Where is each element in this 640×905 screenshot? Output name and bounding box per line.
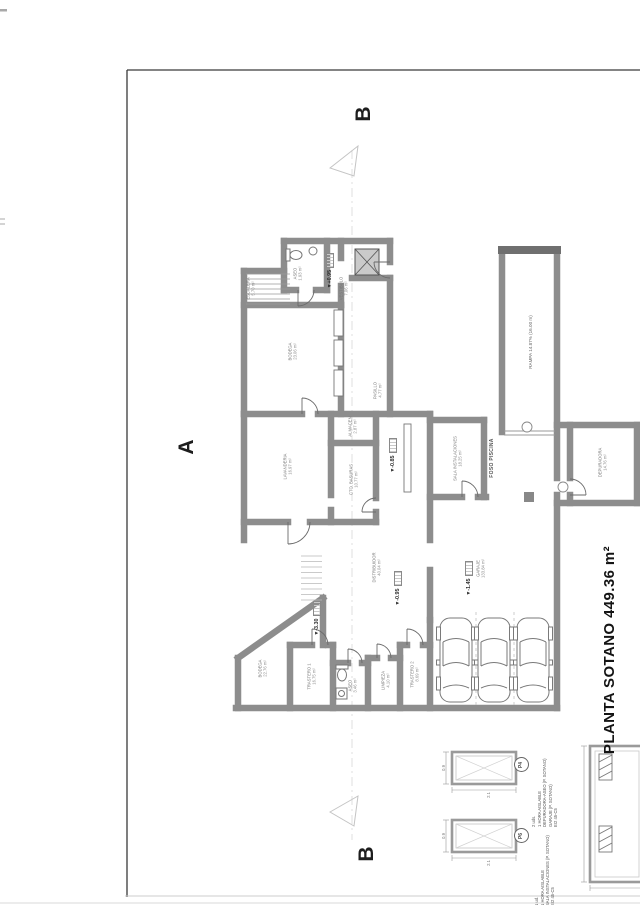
door-mark-icons	[522, 422, 568, 492]
gate-detail	[581, 746, 640, 891]
door-detail-p6	[443, 820, 516, 861]
column	[524, 492, 534, 502]
car-icons	[437, 618, 553, 702]
car-icon	[437, 618, 476, 702]
door-code-p4: P4	[514, 757, 529, 772]
toilet-icon	[286, 249, 302, 261]
door-code-p6: P6	[514, 828, 529, 843]
sink-icon	[309, 247, 317, 255]
stair-treads-lower	[301, 556, 322, 600]
toilet-icon	[336, 665, 348, 681]
door-detail-p4	[443, 752, 516, 793]
scanned-plan-sheet: PLANTA SOTANO 449.36 m² A B B RAMPA 14.8…	[0, 0, 640, 905]
wall-niches	[334, 310, 411, 492]
sheet-edge-artifacts	[0, 9, 640, 903]
floor-plan-drawing	[0, 0, 640, 905]
counter	[404, 424, 411, 492]
boiler-icon	[339, 691, 345, 697]
car-icon	[475, 618, 514, 702]
car-icon	[514, 618, 553, 702]
